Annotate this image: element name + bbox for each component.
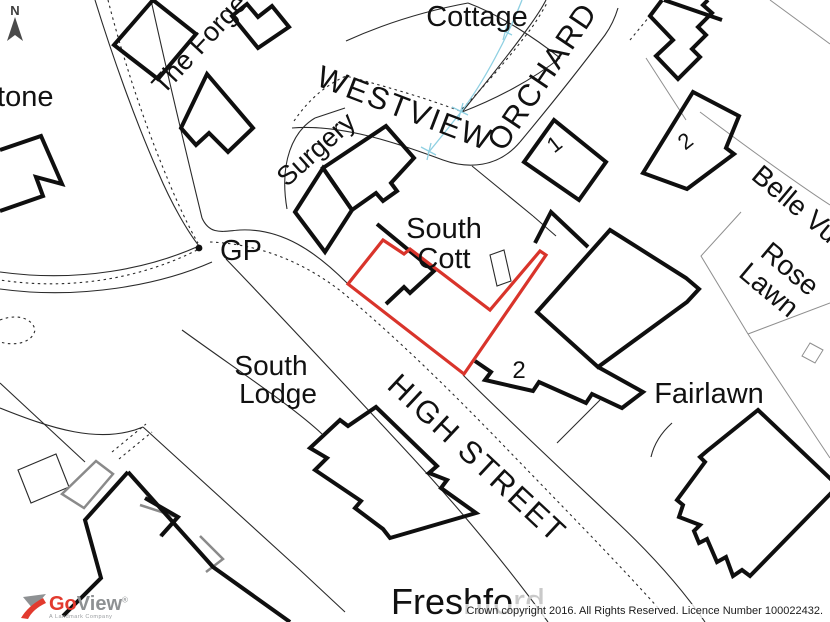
goview-logo-icon <box>20 594 46 620</box>
plot-line <box>651 423 672 457</box>
label-house-1: 1 <box>542 130 567 157</box>
goview-logo-glyph <box>20 594 46 620</box>
goview-logo-text: GoView® A Landmark Company <box>49 594 128 621</box>
road-edge <box>0 246 199 276</box>
plot-line <box>770 0 830 44</box>
label-belle-vue: Belle Vue <box>746 159 830 259</box>
building-outline <box>0 136 62 211</box>
plot-line <box>0 383 85 462</box>
plot-line <box>557 400 600 443</box>
building-outline <box>181 74 253 152</box>
dotted-path <box>630 17 649 40</box>
dotted-path <box>119 432 152 459</box>
north-arrow-icon <box>7 17 23 41</box>
site-plan-map: N stone The Forge Cottage WESTVIEW ORCHA… <box>0 0 830 622</box>
outbuilding-outline <box>802 343 823 363</box>
label-house-2-south: 2 <box>512 357 525 384</box>
building-no2-south <box>475 361 643 408</box>
dotted-path <box>112 424 146 452</box>
plot-line <box>0 408 143 435</box>
road-edge <box>0 262 212 293</box>
logo-registered-mark: ® <box>122 595 128 604</box>
label-south-lodge-1: South <box>234 350 307 381</box>
label-high-street: HIGH STREET <box>381 367 573 550</box>
label-south-lodge-2: Lodge <box>239 378 317 409</box>
gp-marker-dot <box>196 245 203 252</box>
outbuilding-outline <box>490 250 511 286</box>
building-wall <box>535 212 588 247</box>
building-no1 <box>524 120 606 200</box>
grey-building-outline <box>62 461 113 508</box>
building-outline <box>128 472 290 622</box>
logo-word-go: Go <box>49 593 77 615</box>
copyright-notice: Crown copyright 2016. All Rights Reserve… <box>465 604 825 618</box>
label-south-cott-1: South <box>406 213 482 245</box>
building-east-of-plot <box>537 230 699 367</box>
north-arrow: N <box>7 3 23 41</box>
label-gp: GP <box>220 235 262 267</box>
fairlawn-building <box>677 410 830 576</box>
logo-word-view: View <box>77 593 122 615</box>
map-viewport: N stone The Forge Cottage WESTVIEW ORCHA… <box>0 0 830 622</box>
label-south-cott-2: Cott <box>417 243 470 275</box>
logo-tagline: A Landmark Company <box>49 615 128 621</box>
label-cottage: Cottage <box>426 1 528 33</box>
label-house-2-east: 2 <box>673 127 698 154</box>
plot-line <box>472 166 533 216</box>
outbuilding-outline <box>18 454 69 503</box>
label-fairlawn: Fairlawn <box>654 378 764 410</box>
goview-logo: GoView® A Landmark Company <box>20 594 128 621</box>
dotted-path <box>0 317 35 344</box>
dotted-path <box>0 250 197 284</box>
label-stone: stone <box>0 81 53 113</box>
building-outline <box>664 0 722 20</box>
north-label: N <box>10 3 19 18</box>
